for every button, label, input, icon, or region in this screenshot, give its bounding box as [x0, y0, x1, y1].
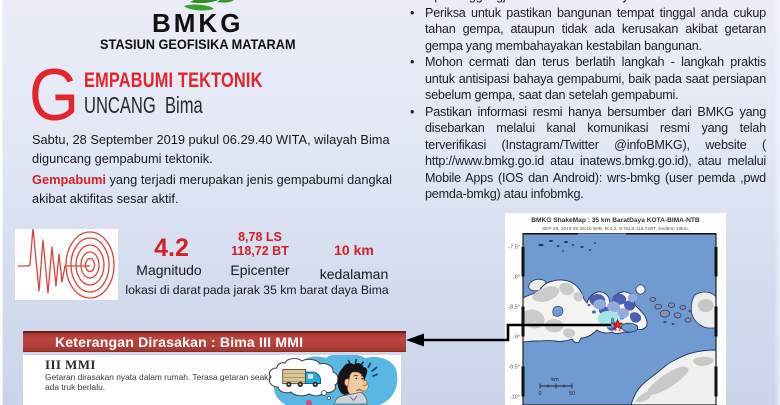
- svg-text:-8°: -8°: [513, 275, 520, 281]
- svg-text:km: km: [551, 377, 559, 383]
- svg-text:-9.5°: -9.5°: [508, 365, 520, 371]
- svg-text:-8.5°: -8.5°: [508, 305, 520, 311]
- svg-text:-10°: -10°: [510, 395, 520, 401]
- svg-text:-7.5°: -7.5°: [508, 245, 520, 251]
- svg-text:50: 50: [569, 391, 575, 397]
- svg-text:0: 0: [538, 391, 541, 397]
